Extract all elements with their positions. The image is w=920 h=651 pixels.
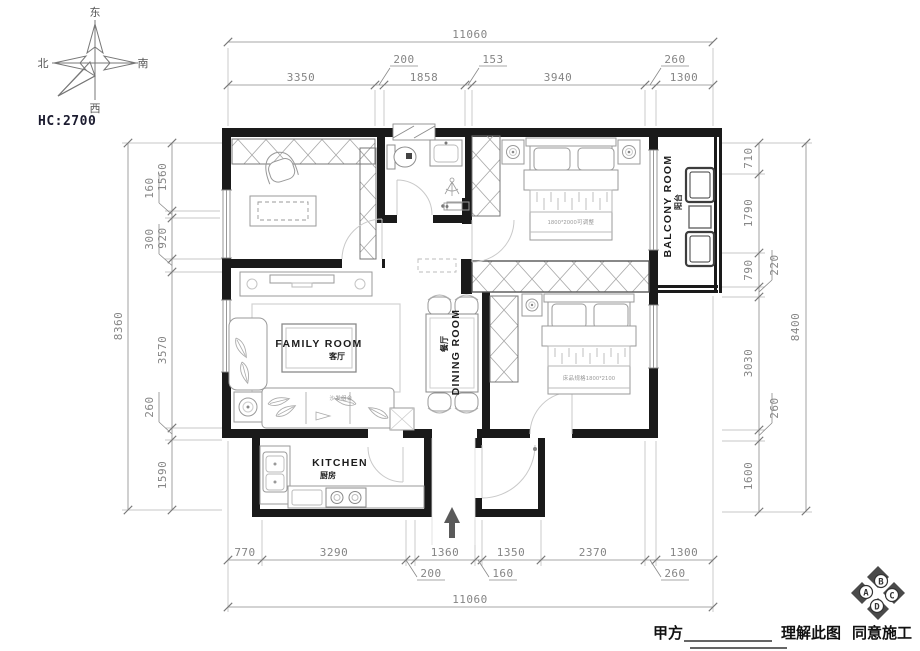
- second-bed-note: 床品规格1800*2100: [563, 374, 616, 382]
- dim-left-1590: 1590: [156, 461, 169, 490]
- window-study-left: [220, 190, 233, 258]
- balcony-table: [689, 206, 711, 228]
- dim-bottom-160: 160: [492, 567, 513, 580]
- agree-label: 同意施工: [852, 624, 912, 642]
- dim-left-160: 160: [143, 177, 156, 198]
- second-bedroom: 床品规格1800*2100: [522, 294, 636, 394]
- dim-top-260: 260: [664, 53, 685, 66]
- dim-bottom-3290: 3290: [320, 546, 349, 559]
- bed-headboard: [526, 138, 616, 146]
- dimension-chain-left: 1560 920 3570 1590 160 300 260 8360: [112, 139, 222, 514]
- kitchen: KITCHEN 厨房: [260, 446, 424, 508]
- toilet-bowl: [394, 147, 416, 167]
- dim-top-1858: 1858: [410, 71, 439, 84]
- dining-chair: [428, 295, 451, 315]
- party-a-label: 甲方: [653, 624, 683, 642]
- tv: [270, 275, 334, 283]
- dim-bottom-770: 770: [234, 546, 255, 559]
- master-bedroom: 1800*2000可调整: [502, 138, 640, 240]
- revision-badge: B A C D: [851, 566, 905, 620]
- dim-top-153: 153: [482, 53, 503, 66]
- dim-right-1600: 1600: [742, 462, 755, 491]
- bedroom2-closet: [490, 296, 518, 382]
- dining-room-label: DINING ROOM: [450, 309, 462, 396]
- study-wardrobe: [232, 139, 375, 164]
- dim-right-710: 710: [742, 147, 755, 168]
- dim-right-3030: 3030: [742, 349, 755, 378]
- pillow: [534, 148, 570, 170]
- dim-top-overall: 11060: [452, 28, 488, 41]
- door-stop: [533, 447, 537, 451]
- signature-block: 甲方 理解此图 同意施工: [653, 624, 912, 648]
- pillow: [578, 148, 614, 170]
- badge-letter-b: B: [878, 578, 884, 588]
- tv-stand: [292, 283, 312, 287]
- window-balcony-slider: [647, 150, 660, 250]
- dim-right-overall: 8400: [789, 313, 802, 342]
- dim-left-1560: 1560: [156, 163, 169, 192]
- dim-right-1790: 1790: [742, 199, 755, 228]
- dim-bottom-1350: 1350: [497, 546, 526, 559]
- dim-left-920: 920: [156, 227, 169, 248]
- duvet-fold: [524, 170, 618, 190]
- dim-left-3570: 3570: [156, 336, 169, 365]
- master-bed-note: 1800*2000可调整: [548, 218, 595, 226]
- sofa-note: 沙发组合: [329, 394, 352, 402]
- dim-bottom-overall: 11060: [452, 593, 488, 606]
- duvet-fold: [542, 326, 636, 346]
- kitchen-label-zh: 厨房: [320, 470, 336, 480]
- cutting-board: [292, 490, 322, 505]
- dim-bottom-1300: 1300: [670, 546, 699, 559]
- badge-letter-d: D: [874, 603, 880, 613]
- master-closet: [472, 136, 500, 216]
- dining-room: DINING ROOM 餐厅: [426, 295, 478, 413]
- ceiling-height-label: HC:2700: [38, 114, 96, 129]
- badge-letter-c: C: [889, 592, 894, 602]
- shower-head: [445, 178, 459, 196]
- dim-bottom-260: 260: [664, 567, 685, 580]
- bed-headboard: [544, 294, 634, 302]
- dim-left-260: 260: [143, 396, 156, 417]
- north-compass: 东 北 南 西: [38, 6, 149, 115]
- badge-letter-a: A: [863, 589, 869, 599]
- compass-north-label: 北: [38, 57, 49, 70]
- corridor-closet: [472, 261, 649, 292]
- dim-top-1300: 1300: [670, 71, 699, 84]
- pillow: [552, 304, 586, 328]
- pillow: [594, 304, 628, 328]
- family-room: FAMILY ROOM 客厅 沙发组合: [229, 272, 414, 430]
- study-cabinet: [360, 148, 376, 259]
- floor-plan-drawing: 东 北 南 西 HC:2700 11060 3350 1858 3940 130…: [0, 0, 920, 651]
- entrance-arrow: [444, 507, 460, 538]
- floor-plan-sheet: 东 北 南 西 HC:2700 11060 3350 1858 3940 130…: [0, 0, 920, 651]
- dim-top-3350: 3350: [287, 71, 316, 84]
- window-top-bath: [393, 124, 435, 140]
- corridor-beam: [418, 259, 456, 272]
- dim-left-300: 300: [143, 228, 156, 249]
- dimension-chain-right: 710 1790 790 3030 1600 220 260 8400: [722, 139, 812, 516]
- window-bedroom2-right: [647, 305, 660, 368]
- compass-east-label: 东: [90, 6, 101, 19]
- kitchen-door: [368, 447, 403, 482]
- sink-faucet: [445, 142, 448, 145]
- dim-right-790: 790: [742, 259, 755, 280]
- bedroom2-door: [530, 392, 572, 434]
- dining-chair: [428, 393, 451, 413]
- bath-door: [397, 180, 432, 215]
- family-room-label-zh: 客厅: [328, 351, 345, 361]
- dim-bottom-1360: 1360: [431, 546, 460, 559]
- dim-right-220: 220: [768, 254, 781, 275]
- balcony-label-zh: 阳台: [673, 194, 683, 210]
- balcony: BALCONY ROOM 阳台: [662, 155, 714, 266]
- dim-right-260: 260: [768, 397, 781, 418]
- master-bedroom-door: [472, 220, 514, 262]
- dim-top-200: 200: [393, 53, 414, 66]
- balcony-label: BALCONY ROOM: [662, 155, 674, 258]
- dimension-chain-top: 11060 3350 1858 3940 1300 200 153 260: [224, 28, 717, 126]
- vestibule-door: [482, 445, 535, 498]
- dim-left-overall: 8360: [112, 312, 125, 341]
- family-room-label: FAMILY ROOM: [275, 338, 362, 350]
- dim-bottom-200: 200: [420, 567, 441, 580]
- compass-south-label: 南: [138, 57, 149, 70]
- dim-bottom-2370: 2370: [579, 546, 608, 559]
- kitchen-label: KITCHEN: [312, 457, 368, 469]
- understand-label: 理解此图: [781, 624, 841, 642]
- dining-room-label-zh: 餐厅: [439, 336, 449, 353]
- dim-top-3940: 3940: [544, 71, 573, 84]
- toilet-flush: [406, 153, 412, 159]
